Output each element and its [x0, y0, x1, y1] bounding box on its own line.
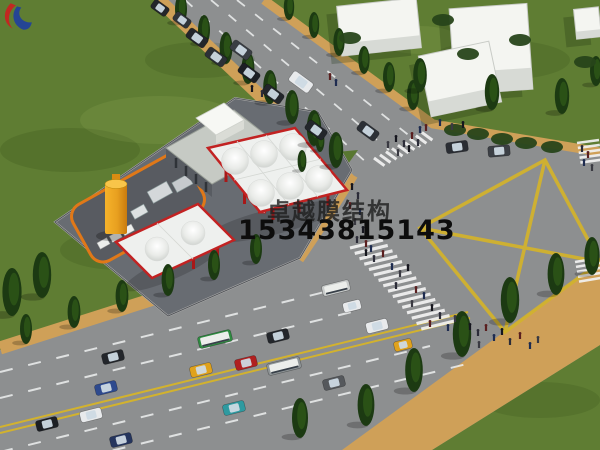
- bush: [491, 133, 513, 145]
- pedestrian: [335, 79, 338, 86]
- pedestrian-head: [382, 250, 385, 253]
- pedestrian-body: [477, 332, 479, 337]
- pedestrian-head: [429, 320, 432, 323]
- pedestrian-body: [387, 144, 389, 149]
- pedestrian: [439, 119, 442, 126]
- pedestrian: [408, 145, 411, 152]
- pedestrian-head: [591, 164, 594, 167]
- bush: [541, 141, 563, 153]
- pedestrian-head: [519, 332, 522, 335]
- pedestrian-body: [469, 326, 471, 331]
- bush: [467, 128, 489, 140]
- tree-highlight: [300, 152, 305, 167]
- bush: [432, 14, 454, 26]
- pedestrian: [403, 140, 406, 147]
- tree-highlight: [72, 299, 79, 321]
- pedestrian-body: [408, 148, 410, 153]
- pedestrian-body: [261, 93, 263, 98]
- pedestrian-body: [395, 285, 397, 290]
- pedestrian-head: [415, 286, 418, 289]
- pedestrian: [411, 300, 414, 307]
- pedestrian-head: [451, 123, 454, 126]
- canopy-cone: [145, 237, 169, 261]
- pedestrian-head: [587, 151, 590, 154]
- pedestrian-body: [362, 229, 364, 234]
- tree-highlight: [387, 65, 394, 85]
- pedestrian-body: [519, 335, 521, 340]
- pedestrian-head: [362, 226, 365, 229]
- pedestrian: [359, 208, 362, 215]
- pedestrian: [373, 255, 376, 262]
- tree-highlight: [297, 402, 306, 429]
- pedestrian: [411, 132, 414, 139]
- tank-body: [105, 184, 127, 234]
- pedestrian-body: [431, 307, 433, 312]
- pedestrian-head: [419, 126, 422, 129]
- pedestrian-body: [329, 76, 331, 81]
- pedestrian: [529, 342, 532, 349]
- pedestrian-body: [423, 295, 425, 300]
- scene-svg: [0, 0, 600, 450]
- tree-highlight: [39, 257, 49, 288]
- pedestrian-body: [587, 154, 589, 159]
- pedestrian: [519, 332, 522, 339]
- canopy-cone: [222, 148, 249, 175]
- bush: [457, 48, 479, 60]
- pedestrian-body: [335, 82, 337, 87]
- tree-highlight: [254, 237, 261, 257]
- pedestrian: [477, 329, 480, 336]
- pedestrian-head: [423, 292, 426, 295]
- pedestrian: [417, 139, 420, 146]
- pedestrian: [429, 320, 432, 327]
- tree-highlight: [120, 283, 127, 305]
- pedestrian: [365, 240, 368, 247]
- pedestrian: [356, 236, 359, 243]
- pedestrian-body: [399, 273, 401, 278]
- pedestrian-body: [349, 205, 351, 210]
- pedestrian-head: [351, 183, 354, 186]
- tank-top: [105, 180, 127, 189]
- tree-highlight: [333, 136, 341, 160]
- pedestrian: [365, 249, 368, 256]
- pedestrian-head: [439, 119, 442, 122]
- pedestrian-body: [485, 327, 487, 332]
- pedestrian: [370, 245, 373, 252]
- pedestrian-head: [509, 338, 512, 341]
- pedestrian: [407, 264, 410, 271]
- pedestrian-head: [365, 240, 368, 243]
- car-glass: [452, 142, 463, 151]
- pedestrian-head: [537, 336, 540, 339]
- tree-highlight: [24, 317, 31, 337]
- pedestrian-head: [439, 312, 442, 315]
- pedestrian-head: [395, 282, 398, 285]
- pedestrian-head: [462, 121, 465, 124]
- pedestrian: [419, 126, 422, 133]
- pedestrian-body: [501, 331, 503, 336]
- tree-highlight: [507, 282, 517, 313]
- pedestrian-head: [370, 245, 373, 248]
- pedestrian-head: [391, 263, 394, 266]
- pedestrian-body: [407, 267, 409, 272]
- architectural-rendering: 卓越膜结构 15343815143: [0, 0, 600, 450]
- pedestrian: [478, 341, 481, 348]
- pedestrian-head: [411, 132, 414, 135]
- pedestrian-body: [403, 143, 405, 148]
- pedestrian: [423, 292, 426, 299]
- pedestrian-head: [469, 323, 472, 326]
- pedestrian-head: [501, 328, 504, 331]
- pedestrian-body: [419, 129, 421, 134]
- pedestrian-head: [581, 145, 584, 148]
- pedestrian: [399, 270, 402, 277]
- canopy-cone: [181, 221, 205, 245]
- pedestrian: [391, 263, 394, 270]
- pedestrian-body: [415, 289, 417, 294]
- pedestrian-body: [411, 135, 413, 140]
- pedestrian: [447, 324, 450, 331]
- pedestrian-head: [397, 149, 400, 152]
- pedestrian-body: [462, 124, 464, 129]
- pedestrian-head: [485, 324, 488, 327]
- pedestrian: [261, 90, 264, 97]
- pedestrian-head: [478, 341, 481, 344]
- pedestrian-head: [261, 90, 264, 93]
- tree-highlight: [224, 35, 231, 57]
- tree-highlight: [589, 241, 597, 267]
- pedestrian-body: [581, 148, 583, 153]
- pedestrian-head: [387, 141, 390, 144]
- pedestrian-body: [454, 318, 456, 323]
- tree-highlight: [312, 15, 318, 33]
- pedestrian: [509, 338, 512, 345]
- tree-highlight: [9, 273, 20, 306]
- pedestrian-body: [365, 252, 367, 257]
- tree-highlight: [418, 61, 425, 84]
- pedestrian: [439, 312, 442, 319]
- pedestrian-head: [477, 329, 480, 332]
- pedestrian-head: [365, 249, 368, 252]
- pedestrian-head: [251, 85, 254, 88]
- pedestrian-body: [417, 142, 419, 147]
- pedestrian: [591, 164, 594, 171]
- pedestrian-body: [382, 253, 384, 258]
- pedestrian-body: [395, 138, 397, 143]
- pedestrian: [583, 159, 586, 166]
- bush: [515, 137, 537, 149]
- pedestrian-body: [451, 126, 453, 131]
- pedestrian: [431, 304, 434, 311]
- pedestrian-head: [417, 139, 420, 142]
- pedestrian-body: [537, 339, 539, 344]
- pedestrian: [351, 183, 354, 190]
- pedestrian: [493, 334, 496, 341]
- pedestrian: [357, 192, 360, 199]
- pedestrian-body: [429, 323, 431, 328]
- tree-highlight: [363, 388, 372, 417]
- pedestrian: [354, 218, 357, 225]
- pedestrian-head: [447, 324, 450, 327]
- pedestrian-head: [411, 300, 414, 303]
- pedestrian-head: [335, 79, 338, 82]
- pedestrian: [462, 121, 465, 128]
- pedestrian: [397, 149, 400, 156]
- pedestrian-body: [591, 167, 593, 172]
- pedestrian: [382, 250, 385, 257]
- pedestrian: [349, 202, 352, 209]
- pedestrian-body: [359, 211, 361, 216]
- pedestrian-body: [439, 315, 441, 320]
- pedestrian-body: [478, 344, 480, 349]
- pedestrian: [415, 286, 418, 293]
- pedestrian-head: [407, 264, 410, 267]
- pedestrian: [454, 315, 457, 322]
- pedestrian-body: [391, 266, 393, 271]
- pedestrian: [387, 141, 390, 148]
- pedestrian-head: [408, 145, 411, 148]
- tree-highlight: [459, 316, 469, 347]
- pedestrian-head: [359, 208, 362, 211]
- pedestrian: [587, 151, 590, 158]
- tree-highlight: [411, 352, 421, 382]
- pedestrian: [395, 135, 398, 142]
- pedestrian-head: [529, 342, 532, 345]
- tree-highlight: [559, 82, 567, 106]
- pedestrian-body: [373, 258, 375, 263]
- pedestrian: [251, 85, 254, 92]
- pedestrian: [425, 124, 428, 131]
- pedestrian-body: [356, 239, 358, 244]
- pedestrian-body: [351, 186, 353, 191]
- pedestrian-body: [425, 127, 427, 132]
- tree-highlight: [166, 267, 173, 289]
- pedestrian-body: [357, 195, 359, 200]
- tree-highlight: [489, 78, 497, 102]
- tree-highlight: [212, 253, 219, 273]
- tree-highlight: [362, 49, 368, 68]
- bush: [574, 56, 596, 68]
- pedestrian-head: [425, 124, 428, 127]
- bush: [509, 34, 531, 46]
- pedestrian-body: [354, 221, 356, 226]
- pedestrian: [485, 324, 488, 331]
- pedestrian: [362, 226, 365, 233]
- pedestrian-head: [357, 192, 360, 195]
- pedestrian-body: [411, 303, 413, 308]
- tree-highlight: [290, 93, 297, 116]
- pedestrian-body: [509, 341, 511, 346]
- pedestrian-head: [329, 73, 332, 76]
- pedestrian-head: [356, 236, 359, 239]
- pedestrian-body: [251, 88, 253, 93]
- pedestrian-head: [431, 304, 434, 307]
- pedestrian-head: [403, 140, 406, 143]
- pedestrian-body: [365, 243, 367, 248]
- pedestrian-body: [439, 122, 441, 127]
- canopy-cone: [251, 141, 278, 168]
- pedestrian-head: [349, 202, 352, 205]
- pedestrian: [501, 328, 504, 335]
- pedestrian-body: [447, 327, 449, 332]
- pedestrian-head: [583, 159, 586, 162]
- pedestrian-body: [583, 162, 585, 167]
- pedestrian-head: [373, 255, 376, 258]
- pedestrian-head: [395, 135, 398, 138]
- pedestrian: [395, 282, 398, 289]
- pedestrian-body: [370, 248, 372, 253]
- pedestrian-body: [529, 345, 531, 350]
- canopy-cone: [248, 180, 275, 207]
- car-glass: [494, 147, 505, 156]
- tree-highlight: [553, 257, 562, 286]
- pedestrian-head: [454, 315, 457, 318]
- pedestrian-body: [493, 337, 495, 342]
- pedestrian: [537, 336, 540, 343]
- canopy-cone: [277, 173, 304, 200]
- pedestrian-head: [354, 218, 357, 221]
- bush: [339, 32, 361, 44]
- pedestrian: [469, 323, 472, 330]
- pedestrian-body: [397, 152, 399, 157]
- pedestrian-head: [493, 334, 496, 337]
- car: [488, 145, 511, 158]
- pedestrian: [581, 145, 584, 152]
- pedestrian-head: [399, 270, 402, 273]
- pedestrian: [329, 73, 332, 80]
- pedestrian: [451, 123, 454, 130]
